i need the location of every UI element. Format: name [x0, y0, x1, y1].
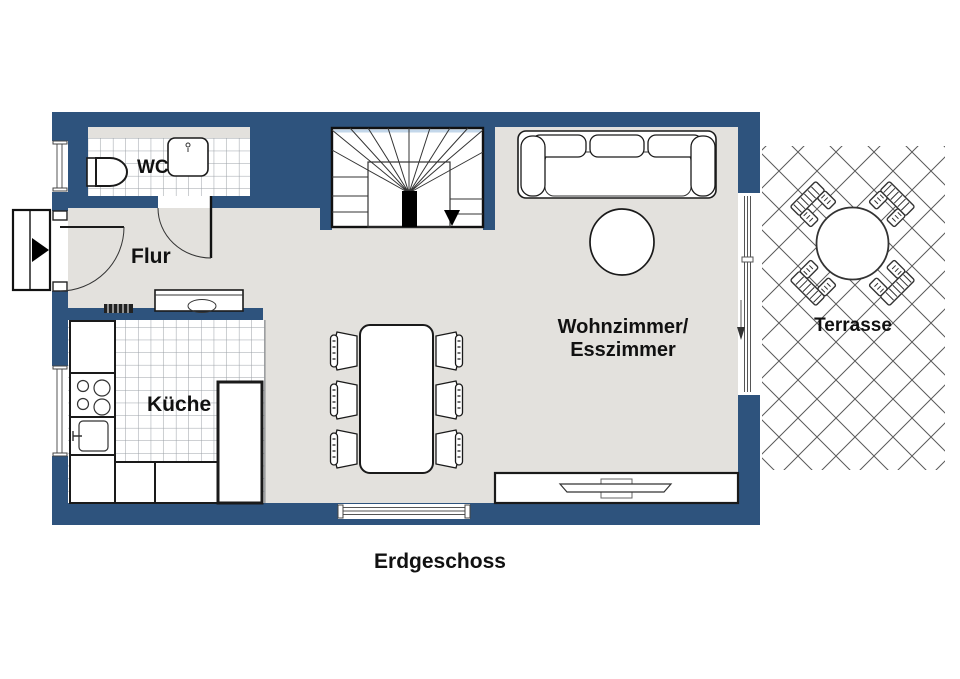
- terrace-tile-paving: [762, 146, 945, 470]
- room-label-terrasse: Terrasse: [814, 315, 892, 336]
- coffee-table: [590, 209, 654, 275]
- terrace-round-table: [817, 208, 889, 280]
- sofa: [518, 131, 716, 198]
- stair-newel-post: [402, 191, 417, 227]
- kitchen-sink: [70, 417, 115, 455]
- dining-chair: [331, 430, 358, 468]
- dining-set: [331, 325, 463, 473]
- terrace-glass-door: [737, 193, 760, 395]
- kitchen-base-cabinet: [155, 462, 218, 503]
- wc-window: [52, 141, 68, 192]
- fridge-tall-unit: [218, 382, 262, 503]
- flur-sideboard: [155, 290, 243, 313]
- room-label-flur: Flur: [131, 245, 171, 268]
- wall-right-of-wc: [250, 127, 332, 208]
- room-label-esszimmer: Esszimmer: [570, 339, 676, 361]
- toilet: [96, 158, 127, 186]
- bottom-window: [338, 504, 470, 519]
- floor-plan: Terrasse: [0, 0, 960, 679]
- kitchen-base-cabinet: [70, 455, 115, 503]
- dining-chair: [331, 381, 358, 419]
- wc-door-opening: [158, 196, 210, 208]
- entrance-marker: [13, 210, 50, 290]
- room-label-kueche: Küche: [147, 393, 211, 416]
- dining-chair: [436, 430, 463, 468]
- floor-title: Erdgeschoss: [374, 550, 506, 573]
- room-label-wohnzimmer: Wohnzimmer/: [558, 316, 689, 338]
- terrace-area: Terrasse: [762, 146, 945, 470]
- staircase: [332, 128, 483, 227]
- toilet-tank: [87, 158, 96, 186]
- room-label-wc: WC: [137, 157, 169, 178]
- dining-chair: [436, 381, 463, 419]
- dining-chair: [436, 332, 463, 370]
- stove: [70, 373, 115, 417]
- wall-stair-right: [483, 127, 495, 230]
- lowboard: [495, 473, 738, 503]
- kitchen-counter-cabinet: [70, 321, 115, 373]
- wall-top: [52, 112, 760, 127]
- wc-sink: [168, 138, 208, 176]
- wall-stair-left: [320, 127, 332, 230]
- tv-screen: [560, 484, 671, 492]
- kitchen-base-cabinet: [115, 462, 155, 503]
- dining-chair: [331, 332, 358, 370]
- dining-table: [360, 325, 433, 473]
- kitchen-window: [52, 366, 68, 456]
